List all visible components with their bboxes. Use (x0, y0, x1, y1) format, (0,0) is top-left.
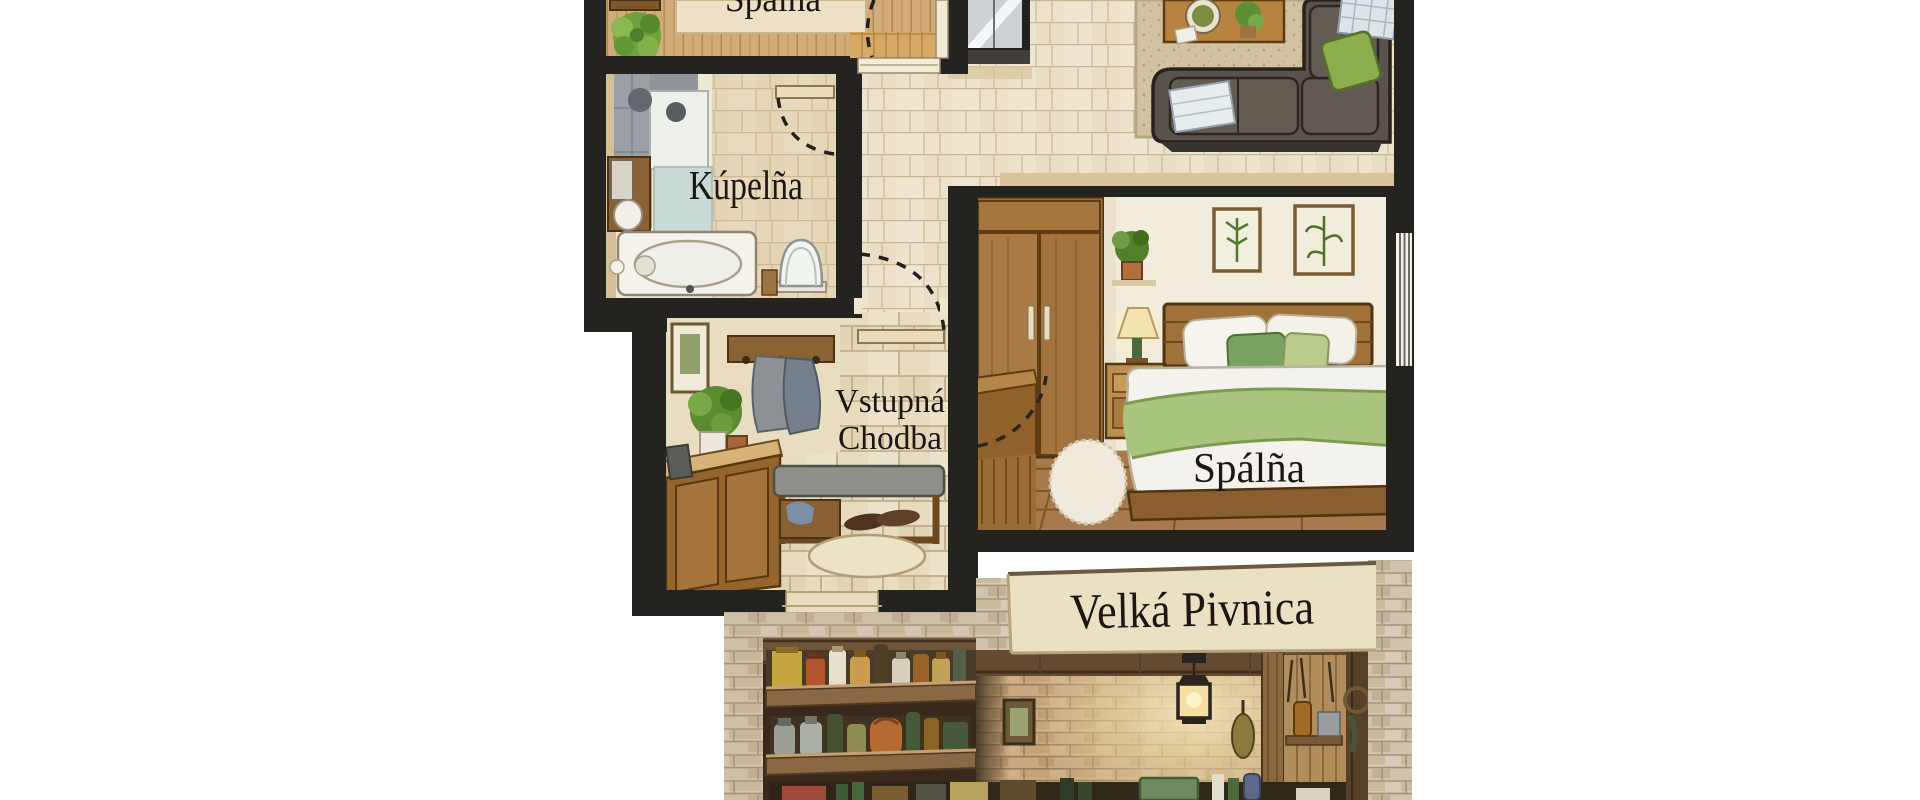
svg-text:Velká Pivnica: Velká Pivnica (1069, 578, 1314, 639)
svg-text:Spálña: Spálña (1193, 446, 1305, 492)
svg-text:Spálña: Spálña (725, 0, 821, 20)
svg-text:Vstupná: Vstupná (835, 383, 945, 420)
svg-text:Kúpelña: Kúpelña (689, 162, 803, 208)
svg-text:Chodba: Chodba (838, 420, 942, 457)
